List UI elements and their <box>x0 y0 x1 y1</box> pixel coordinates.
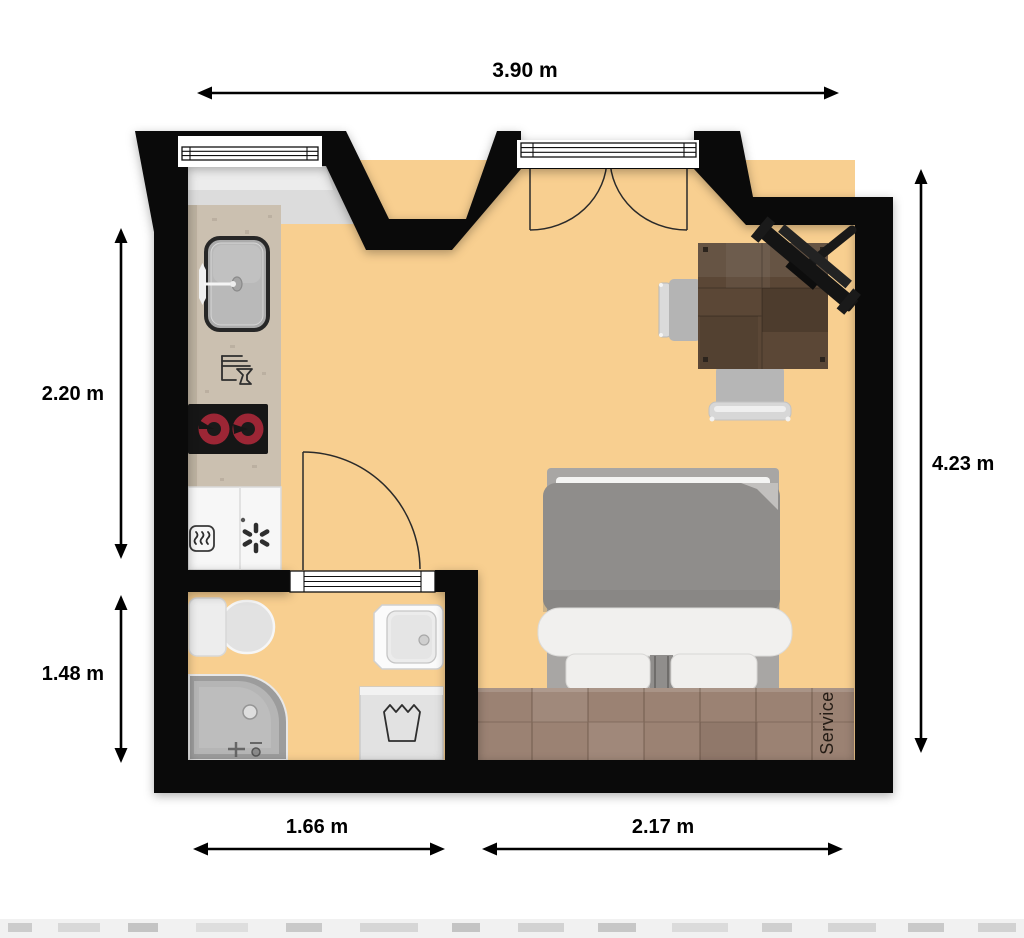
pillow <box>566 654 650 690</box>
interior-door-frame <box>290 571 435 592</box>
dim-right-label: 4.23 m <box>932 453 994 475</box>
dim-left-upper: 2.20 m <box>42 228 128 559</box>
dim-right: 4.23 m <box>915 169 995 753</box>
dim-top-label: 3.90 m <box>492 59 557 82</box>
kitchen-area <box>188 205 281 570</box>
pillow-gap <box>650 655 673 689</box>
pillow <box>671 654 757 690</box>
dim-bottom-left-label: 1.66 m <box>286 816 348 838</box>
bathroom-wall-left <box>188 570 290 592</box>
bathroom-wall-vertical <box>445 592 478 760</box>
window-top-left <box>178 136 322 167</box>
side-chair <box>659 279 701 341</box>
fridge-freezer <box>188 487 281 570</box>
bathroom-wall-right <box>435 570 478 592</box>
dim-left-upper-label: 2.20 m <box>42 383 104 405</box>
floor-plan-page: Service <box>0 0 1024 938</box>
cooktop <box>188 404 268 454</box>
dim-bottom-right-label: 2.17 m <box>632 816 694 838</box>
dim-bottom-left: 1.66 m <box>193 816 445 856</box>
dim-left-lower-label: 1.48 m <box>42 663 104 685</box>
washing-machine <box>360 687 443 760</box>
window-balcony <box>517 140 699 168</box>
desk-chair <box>709 366 791 422</box>
folded-sheet <box>538 608 792 656</box>
kitchen-sink <box>199 238 268 330</box>
window-reveal <box>167 166 333 190</box>
washbasin <box>374 605 443 669</box>
floor-plan-svg: Service <box>0 0 1024 938</box>
basin-drain <box>419 635 429 645</box>
service-label: Service <box>817 691 837 755</box>
dim-left-lower: 1.48 m <box>42 595 128 763</box>
service-platform: Service <box>478 688 854 760</box>
thumbnail-strip <box>0 919 1024 938</box>
shower <box>189 675 287 760</box>
dim-bottom-right: 2.17 m <box>482 816 843 856</box>
double-bed <box>538 468 792 716</box>
shower-drain <box>243 705 257 719</box>
toilet <box>189 598 274 656</box>
dim-top: 3.90 m <box>197 59 839 100</box>
